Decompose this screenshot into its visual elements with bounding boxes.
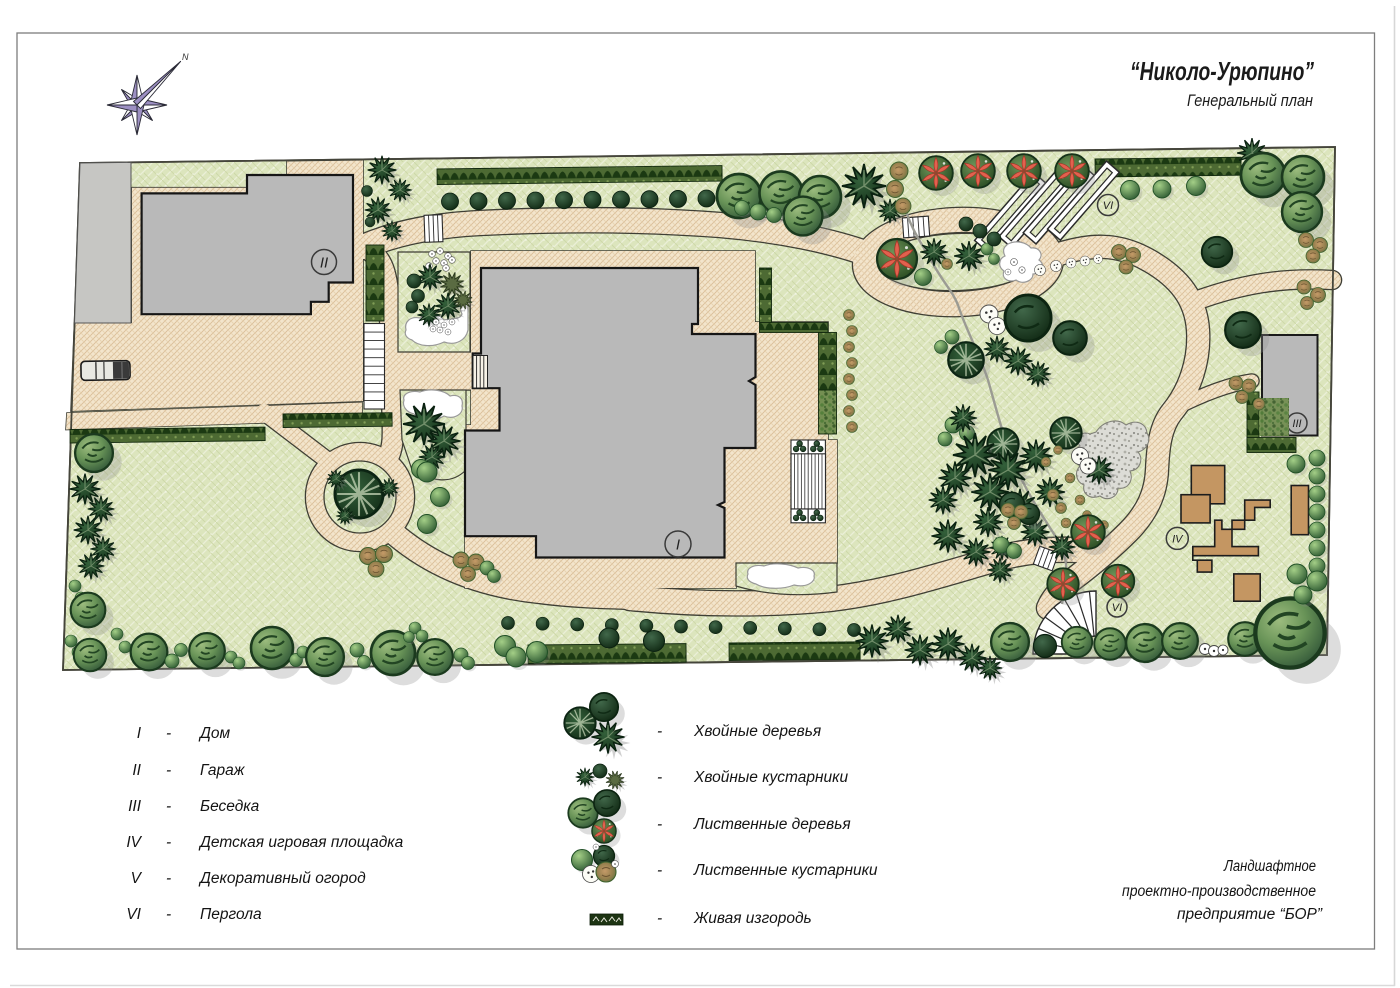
svg-text:III: III — [1292, 418, 1301, 430]
svg-text:Декоративный огород: Декоративный огород — [198, 870, 366, 887]
svg-text:N: N — [182, 52, 189, 62]
svg-text:-: - — [166, 762, 171, 779]
svg-text:Лиственные кустарники: Лиственные кустарники — [693, 862, 878, 879]
svg-text:Хвойные кустарники: Хвойные кустарники — [693, 769, 848, 786]
svg-text:Пергола: Пергола — [200, 906, 262, 923]
svg-text:II: II — [320, 254, 328, 271]
svg-text:VI: VI — [126, 906, 141, 923]
svg-text:I: I — [137, 725, 142, 742]
svg-text:-: - — [166, 906, 171, 923]
svg-text:предприятие “БОР”: предприятие “БОР” — [1177, 906, 1323, 923]
svg-text:-: - — [166, 834, 171, 851]
svg-text:Детская игровая площадка: Детская игровая площадка — [198, 834, 404, 851]
svg-text:Живая изгородь: Живая изгородь — [693, 910, 812, 927]
svg-text:“Николо-Урюпино”: “Николо-Урюпино” — [1130, 56, 1314, 86]
svg-text:IV: IV — [1172, 533, 1184, 545]
svg-text:-: - — [166, 870, 171, 887]
svg-text:-: - — [657, 862, 662, 879]
svg-text:-: - — [166, 798, 171, 815]
svg-text:проектно-производственное: проектно-производственное — [1122, 883, 1316, 900]
svg-text:V: V — [131, 870, 143, 887]
svg-text:-: - — [657, 816, 662, 833]
svg-text:-: - — [657, 769, 662, 786]
svg-text:Ландшафтное: Ландшафтное — [1223, 858, 1316, 875]
svg-text:-: - — [166, 725, 171, 742]
svg-text:Хвойные деревья: Хвойные деревья — [693, 723, 821, 740]
svg-text:II: II — [132, 762, 141, 779]
svg-text:-: - — [657, 723, 662, 740]
svg-text:-: - — [657, 910, 662, 927]
svg-text:VI: VI — [1103, 200, 1113, 212]
svg-text:Генеральный план: Генеральный план — [1187, 91, 1314, 110]
svg-text:VI: VI — [1112, 602, 1122, 614]
svg-text:Гараж: Гараж — [200, 762, 246, 779]
svg-text:III: III — [128, 798, 142, 815]
svg-text:IV: IV — [126, 834, 142, 851]
svg-text:Дом: Дом — [198, 725, 231, 742]
svg-text:Лиственные деревья: Лиственные деревья — [693, 816, 851, 833]
svg-text:Беседка: Беседка — [200, 798, 260, 815]
svg-text:I: I — [676, 536, 680, 553]
